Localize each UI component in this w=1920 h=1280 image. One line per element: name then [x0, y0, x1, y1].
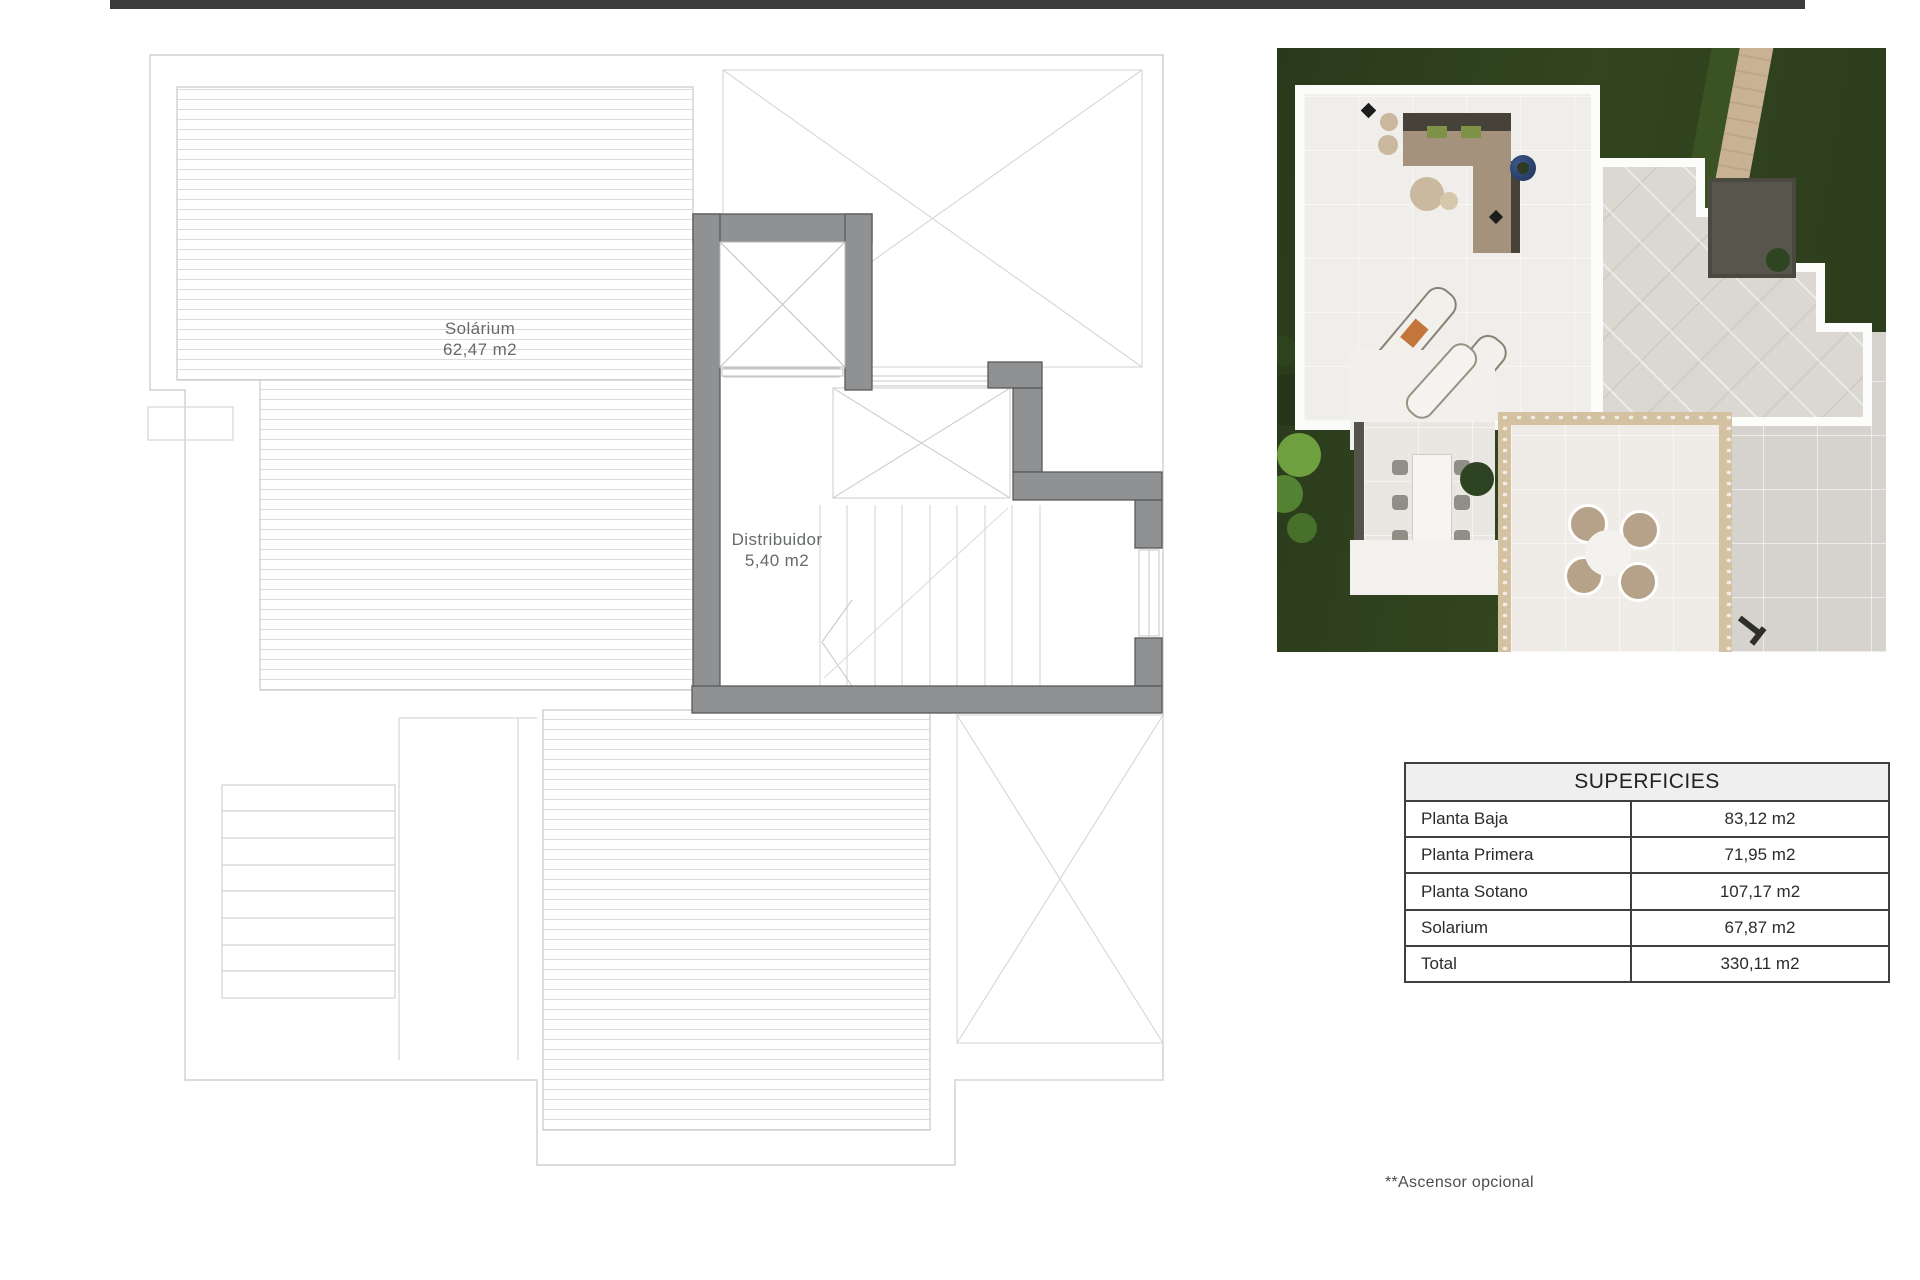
void-xbox-center [833, 388, 1010, 498]
row-value: 83,12 m2 [1632, 802, 1888, 836]
deck-solarium-lower-left [260, 380, 693, 690]
green-cushion [1427, 126, 1447, 138]
walkway-slab [1350, 540, 1500, 595]
sofa-horizontal [1403, 113, 1511, 166]
elevator-shaft [720, 242, 845, 376]
solarium-room-label: Solárium 62,47 m2 [400, 318, 560, 360]
bush [1287, 513, 1317, 543]
distribuidor-room-name: Distribuidor [697, 529, 857, 550]
green-cushion [1461, 126, 1481, 138]
bush [1277, 336, 1297, 366]
bush [1277, 475, 1303, 513]
lounger-cushion [1400, 319, 1428, 348]
aerial-photo [1277, 48, 1886, 652]
row-label: Planta Primera [1406, 838, 1632, 872]
row-label: Solarium [1406, 911, 1632, 945]
table-row: Planta Baja 83,12 m2 [1406, 802, 1888, 838]
superficies-table: SUPERFICIES Planta Baja 83,12 m2 Planta … [1404, 762, 1890, 983]
table-row: Planta Primera 71,95 m2 [1406, 838, 1888, 874]
roof-xbox-bottom-right [957, 715, 1163, 1080]
row-label: Planta Baja [1406, 802, 1632, 836]
table-title: SUPERFICIES [1406, 764, 1888, 802]
pouf [1380, 113, 1398, 131]
chair [1454, 495, 1470, 510]
solarium-room-name: Solárium [400, 318, 560, 339]
elevator-footnote: **Ascensor opcional [1385, 1174, 1534, 1192]
pouf [1378, 135, 1398, 155]
row-label: Planta Sotano [1406, 874, 1632, 908]
row-value: 107,17 m2 [1632, 874, 1888, 908]
solarium-room-area: 62,47 m2 [400, 339, 560, 360]
row-value: 330,11 m2 [1632, 947, 1888, 981]
row-value: 71,95 m2 [1632, 838, 1888, 872]
brochure-page: Solárium 62,47 m2 Distribuidor 5,40 m2 [0, 0, 1920, 1280]
deck-solarium-bottom [543, 710, 930, 1130]
distribuidor-room-label: Distribuidor 5,40 m2 [697, 529, 857, 571]
row-label: Total [1406, 947, 1632, 981]
table-row: Total 330,11 m2 [1406, 947, 1888, 981]
table-row: Planta Sotano 107,17 m2 [1406, 874, 1888, 910]
travertine-terrace [1498, 412, 1732, 652]
pot-plant [1517, 162, 1529, 174]
bush [1277, 433, 1321, 477]
chair [1392, 460, 1408, 475]
dining-table-long [1412, 454, 1452, 553]
round-table [1585, 530, 1631, 576]
distribuidor-room-area: 5,40 m2 [697, 550, 857, 571]
courtyard-plant [1460, 462, 1494, 496]
sofa-back-cushions [1403, 113, 1511, 131]
chair [1392, 495, 1408, 510]
patio-plant [1766, 248, 1790, 272]
row-value: 67,87 m2 [1632, 911, 1888, 945]
patio-void [1708, 178, 1796, 278]
exterior-stairs [222, 785, 395, 998]
pouf [1440, 192, 1458, 210]
table-row: Solarium 67,87 m2 [1406, 911, 1888, 947]
blue-plant-pot [1510, 155, 1536, 181]
round-coffee-table [1410, 177, 1444, 211]
